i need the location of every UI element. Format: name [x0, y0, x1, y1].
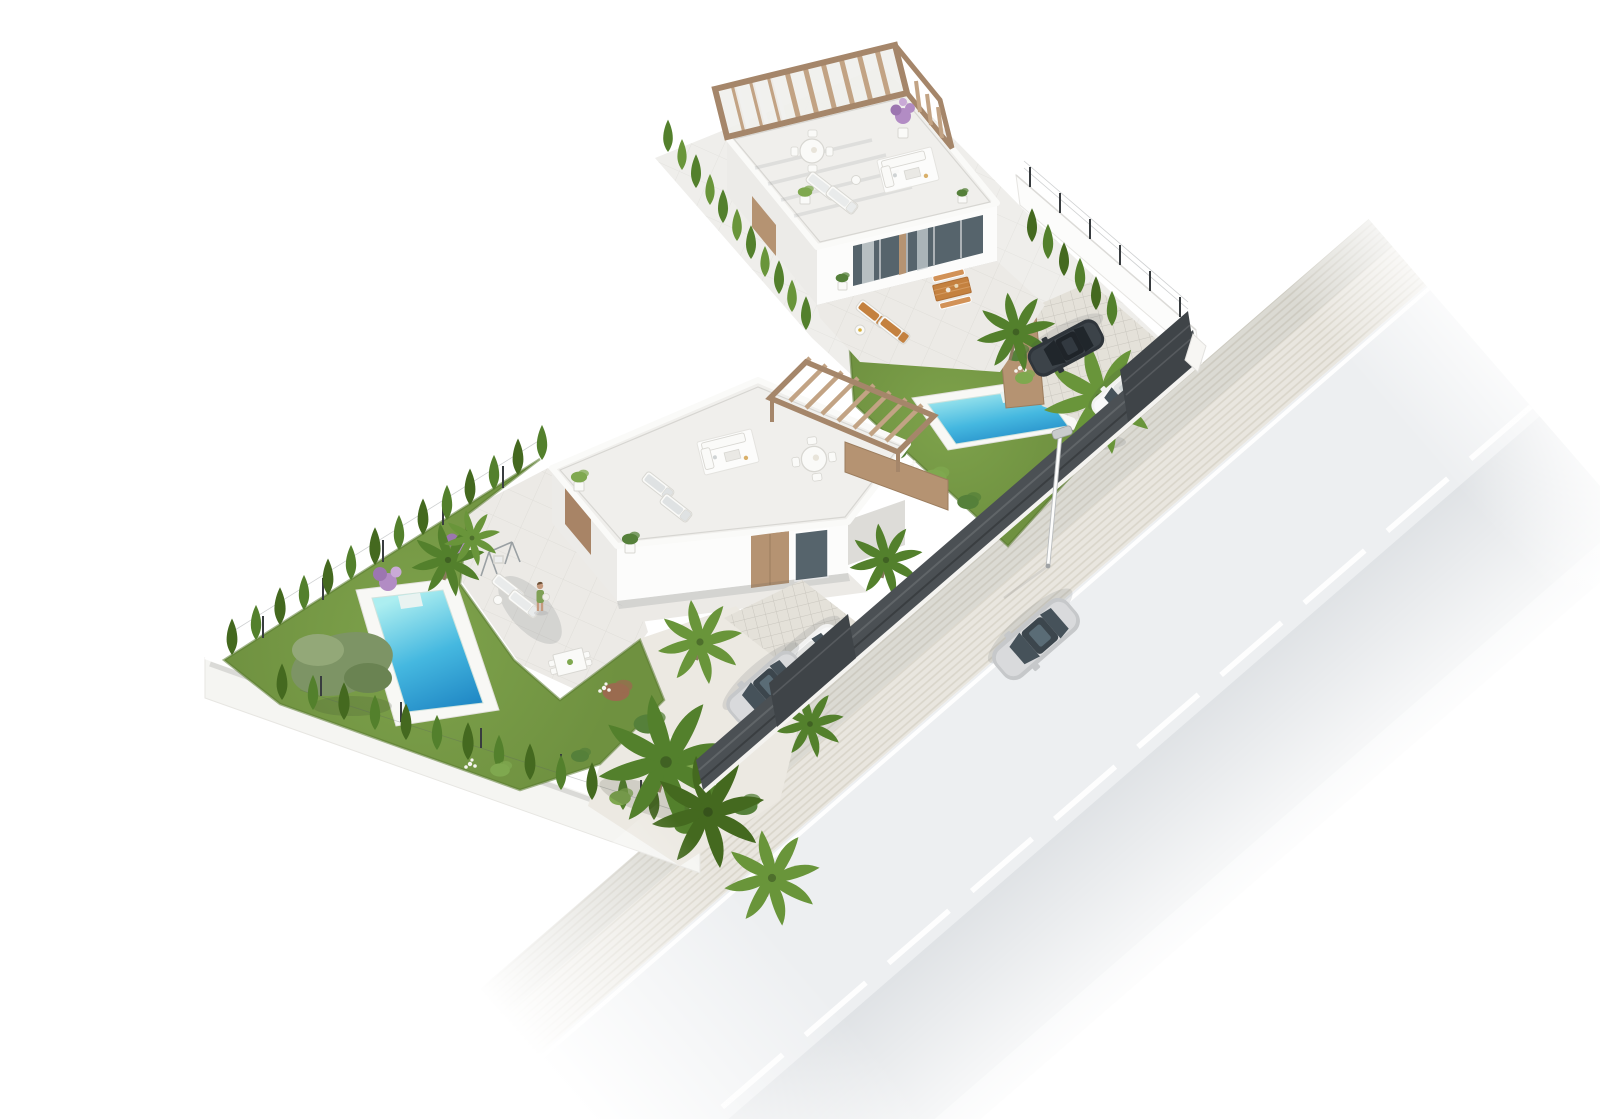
white-fade-overlays [0, 0, 1600, 1119]
site-plan-svg [0, 0, 1600, 1119]
aerial-render-two-villas [0, 0, 1600, 1119]
